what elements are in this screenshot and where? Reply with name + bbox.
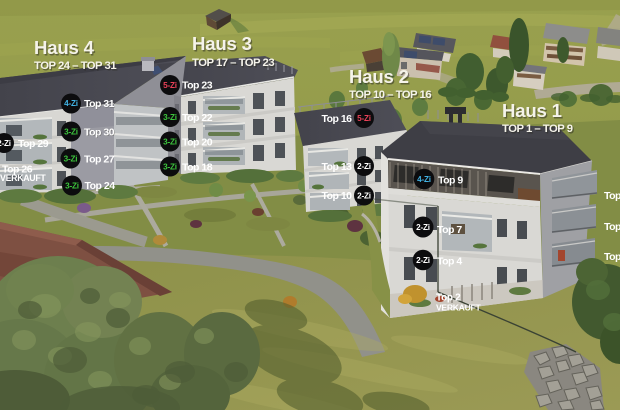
- svg-text:Haus 2: Haus 2: [349, 66, 409, 87]
- svg-text:Top 24: Top 24: [85, 180, 116, 192]
- svg-text:Haus 1: Haus 1: [502, 100, 562, 121]
- svg-text:3-Zi: 3-Zi: [65, 182, 79, 191]
- svg-text:Top 16: Top 16: [321, 113, 352, 125]
- svg-text:2-Zi: 2-Zi: [357, 192, 371, 201]
- svg-text:Top 13: Top 13: [321, 161, 352, 173]
- svg-text:Haus 4: Haus 4: [34, 37, 95, 58]
- svg-text:Top 8: Top 8: [604, 190, 620, 202]
- svg-text:TOP 17 – TOP 23: TOP 17 – TOP 23: [192, 57, 274, 69]
- svg-text:3-Zi: 3-Zi: [163, 113, 177, 122]
- svg-text:Top 29: Top 29: [18, 138, 49, 150]
- svg-text:5-Zi: 5-Zi: [357, 114, 371, 123]
- svg-text:Top 4: Top 4: [437, 256, 462, 268]
- svg-text:2-Zi: 2-Zi: [0, 139, 11, 148]
- svg-text:5-Zi: 5-Zi: [163, 81, 177, 90]
- svg-text:4-Zi: 4-Zi: [64, 99, 78, 108]
- svg-text:Top 18: Top 18: [182, 162, 213, 174]
- svg-text:Haus 3: Haus 3: [192, 33, 252, 54]
- svg-text:Top 10: Top 10: [321, 190, 352, 202]
- svg-text:TOP 10 – TOP 16: TOP 10 – TOP 16: [349, 89, 431, 101]
- svg-text:3-Zi: 3-Zi: [163, 163, 177, 172]
- svg-text:Top 3: Top 3: [604, 251, 620, 263]
- svg-text:Top 23: Top 23: [182, 80, 213, 92]
- svg-text:Top 22: Top 22: [182, 112, 213, 124]
- svg-text:Top 20: Top 20: [182, 137, 213, 149]
- svg-text:Top 30: Top 30: [84, 127, 115, 139]
- svg-text:VERKAUFT: VERKAUFT: [0, 173, 46, 183]
- svg-text:Top 31: Top 31: [84, 98, 115, 110]
- svg-text:2-Zi: 2-Zi: [357, 162, 371, 171]
- svg-text:VERKAUFT: VERKAUFT: [436, 303, 481, 313]
- svg-text:4-Zi: 4-Zi: [417, 175, 431, 184]
- svg-text:Top 9: Top 9: [438, 175, 463, 187]
- svg-text:Top 27: Top 27: [84, 154, 115, 166]
- svg-text:TOP 1 – TOP 9: TOP 1 – TOP 9: [502, 123, 573, 135]
- svg-text:3-Zi: 3-Zi: [163, 138, 177, 147]
- svg-text:2-Zi: 2-Zi: [416, 223, 430, 232]
- svg-text:2-Zi: 2-Zi: [416, 256, 430, 265]
- svg-text:Top 7: Top 7: [437, 224, 462, 236]
- svg-text:TOP 24 – TOP 31: TOP 24 – TOP 31: [34, 60, 116, 72]
- svg-text:Top 5: Top 5: [604, 221, 620, 233]
- svg-text:3-Zi: 3-Zi: [64, 128, 78, 137]
- svg-text:3-Zi: 3-Zi: [64, 155, 78, 164]
